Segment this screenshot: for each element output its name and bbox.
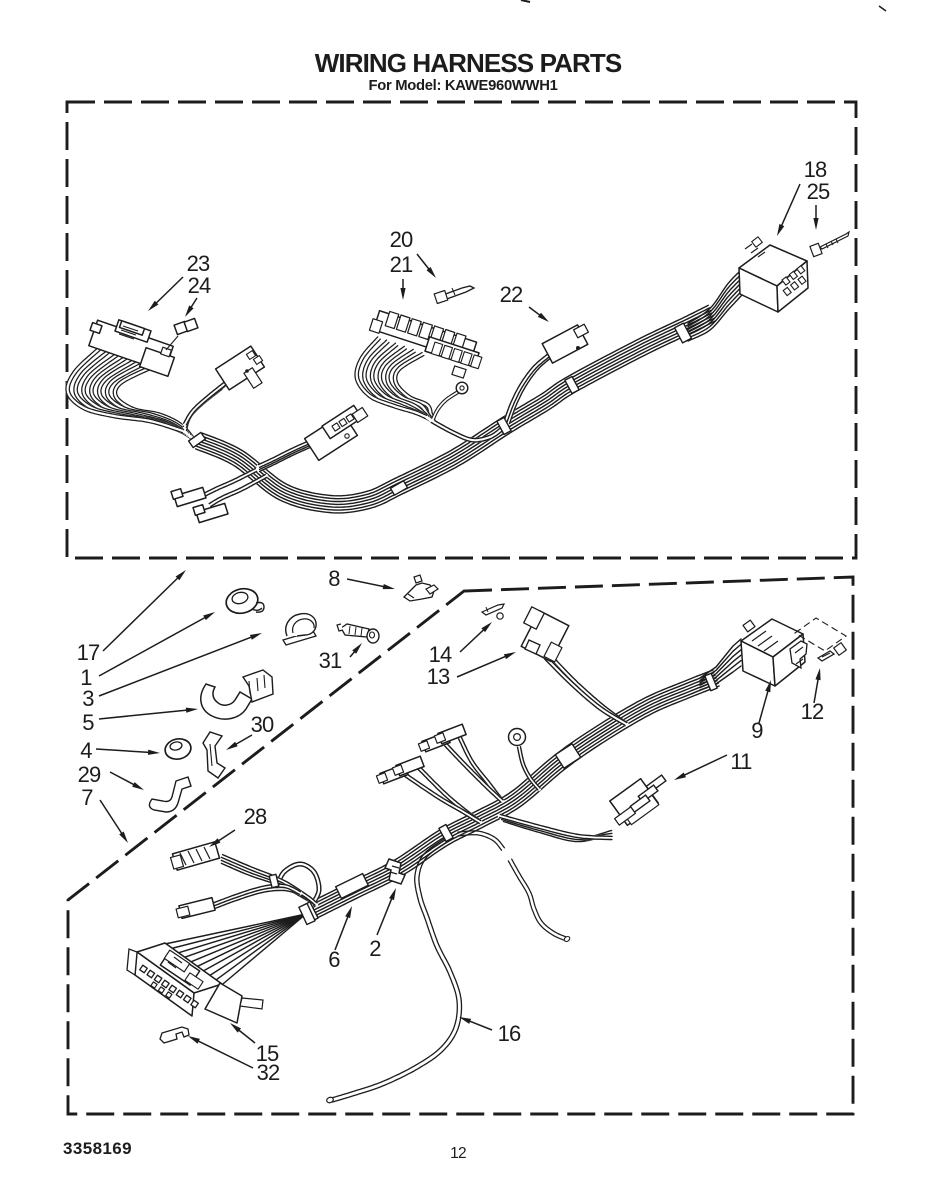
svg-text:WIRING HARNESS PARTS: WIRING HARNESS PARTS [315,48,622,78]
svg-text:8: 8 [328,566,340,591]
svg-text:13: 13 [427,664,450,689]
svg-text:4: 4 [80,738,92,763]
svg-text:31: 31 [319,648,342,673]
svg-text:30: 30 [251,712,274,737]
svg-text:2: 2 [369,936,381,961]
svg-text:24: 24 [188,273,211,298]
svg-text:12: 12 [450,1145,466,1162]
svg-text:22: 22 [500,282,523,307]
svg-text:3358169: 3358169 [63,1139,132,1158]
svg-text:29: 29 [78,762,101,787]
svg-text:6: 6 [328,947,340,972]
svg-text:3: 3 [82,686,94,711]
svg-text:16: 16 [498,1021,521,1046]
svg-text:11: 11 [730,749,752,774]
svg-text:25: 25 [807,179,830,204]
svg-text:20: 20 [390,227,413,252]
svg-text:9: 9 [751,718,763,743]
svg-text:17: 17 [77,640,100,665]
svg-text:For Model: KAWE960WWH1: For Model: KAWE960WWH1 [368,78,557,94]
svg-text:7: 7 [81,785,93,810]
svg-text:5: 5 [82,710,94,735]
svg-text:21: 21 [390,252,413,277]
svg-text:12: 12 [801,699,824,724]
svg-text:28: 28 [244,804,267,829]
svg-text:32: 32 [257,1060,280,1085]
